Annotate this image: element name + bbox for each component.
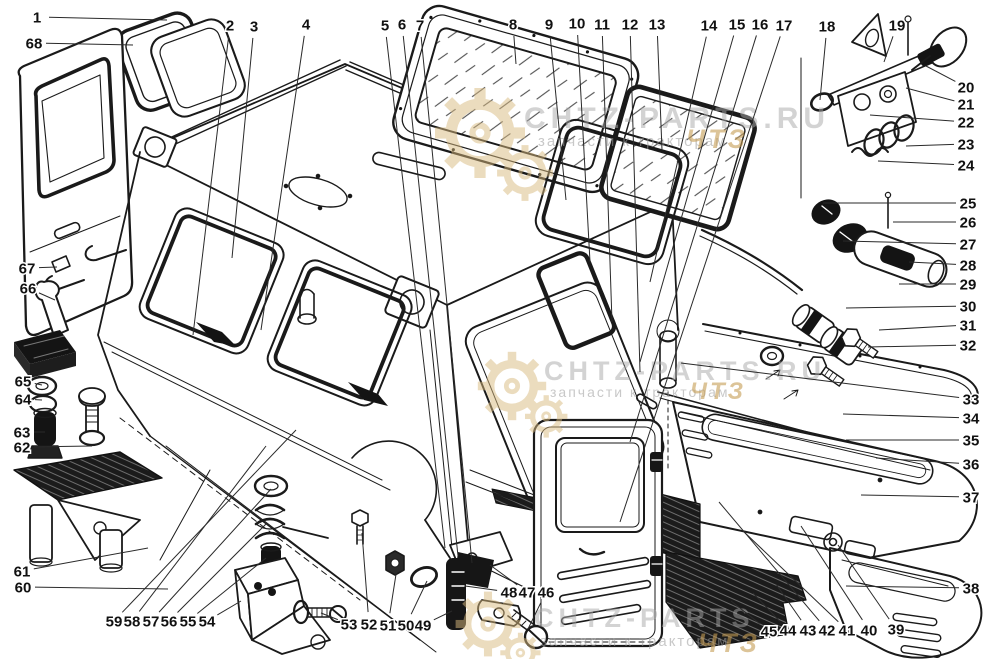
- part-number-37: 37: [963, 490, 980, 507]
- part-number-63: 63: [14, 425, 31, 442]
- part-number-21: 21: [958, 97, 975, 114]
- leader-line-31: [879, 326, 956, 330]
- part-number-49: 49: [415, 618, 432, 635]
- leader-line-60: [35, 587, 168, 589]
- part-number-53: 53: [341, 617, 358, 634]
- watermark-tagline-suffix: ЧТЗ: [690, 378, 746, 405]
- part-number-7: 7: [416, 18, 424, 35]
- part-number-56: 56: [161, 614, 178, 631]
- rain-gutter-strip: [700, 230, 802, 294]
- part-number-8: 8: [509, 17, 517, 34]
- rubber-cushion: [14, 330, 76, 378]
- washer: [409, 564, 440, 590]
- part-number-47: 47: [519, 585, 536, 602]
- part-number-54: 54: [199, 614, 216, 631]
- part-number-67: 67: [19, 261, 36, 278]
- leader-line-54: [217, 601, 241, 615]
- leader-line-24: [878, 161, 954, 164]
- part-number-20: 20: [958, 80, 975, 97]
- leader-line-47: [490, 565, 517, 585]
- part-number-10: 10: [569, 16, 586, 33]
- leader-line-18: [820, 38, 826, 100]
- side-panel-upper: [673, 402, 977, 558]
- part-number-35: 35: [963, 433, 980, 450]
- leader-line-52: [362, 533, 368, 612]
- part-number-66: 66: [20, 281, 37, 298]
- leader-line-30: [846, 306, 956, 308]
- part-number-50: 50: [398, 618, 415, 635]
- part-number-41: 41: [839, 623, 856, 640]
- part-number-40: 40: [861, 623, 878, 640]
- part-number-34: 34: [963, 411, 980, 428]
- cowl-bolt: [298, 290, 316, 325]
- part-number-30: 30: [960, 299, 977, 316]
- wheel-arch: [352, 441, 436, 520]
- part-number-36: 36: [963, 457, 980, 474]
- exploded-cab-diagram: CHTZ-PARTS.RUзапчасти к тракторамЧТЗCHTZ…: [0, 0, 1000, 659]
- part-number-28: 28: [960, 258, 977, 275]
- part-number-51: 51: [380, 618, 397, 635]
- part-number-6: 6: [398, 17, 406, 34]
- part-number-17: 17: [776, 18, 793, 35]
- part-number-52: 52: [361, 617, 378, 634]
- parts-diagram-page: CHTZ-PARTS.RUзапчасти к тракторамЧТЗCHTZ…: [0, 0, 1000, 659]
- part-number-44: 44: [780, 623, 797, 640]
- part-number-15: 15: [729, 17, 746, 34]
- part-number-48: 48: [501, 585, 518, 602]
- part-number-18: 18: [819, 19, 836, 36]
- support-bracket: [14, 452, 162, 572]
- part-number-3: 3: [250, 19, 258, 36]
- part-number-38: 38: [963, 581, 980, 598]
- part-number-5: 5: [381, 18, 389, 35]
- part-number-33: 33: [963, 392, 980, 409]
- watermark-tagline-suffix: ЧТЗ: [698, 628, 760, 658]
- part-number-64: 64: [15, 392, 32, 409]
- leader-line-32: [868, 345, 956, 347]
- part-number-29: 29: [960, 277, 977, 294]
- part-number-24: 24: [958, 158, 975, 175]
- leader-line-67: [39, 267, 57, 268]
- part-number-39: 39: [888, 622, 905, 639]
- leader-line-21: [906, 88, 954, 101]
- part-number-57: 57: [143, 614, 160, 631]
- hinge-cylinder: [849, 227, 951, 292]
- part-number-65: 65: [15, 374, 32, 391]
- part-number-12: 12: [622, 17, 639, 34]
- link-rod: [283, 527, 328, 538]
- part-number-13: 13: [649, 17, 666, 34]
- part-number-60: 60: [15, 580, 32, 597]
- part-number-32: 32: [960, 338, 977, 355]
- leader-line-34: [843, 414, 959, 418]
- part-number-26: 26: [960, 215, 977, 232]
- part-number-9: 9: [545, 17, 553, 34]
- small-bolt: [352, 510, 368, 544]
- part-number-4: 4: [302, 17, 311, 34]
- part-number-62: 62: [14, 440, 31, 457]
- part-number-11: 11: [594, 17, 610, 34]
- windshield-opening-right: [264, 256, 416, 409]
- part-number-16: 16: [752, 17, 769, 34]
- leader-line-23: [906, 144, 954, 146]
- watermark-brand-text: CHTZ-PARTS.RU: [544, 356, 826, 386]
- mount-bolt: [79, 388, 105, 445]
- part-number-14: 14: [701, 18, 718, 35]
- vent-window-opening: [536, 251, 616, 350]
- watermark-gear-icon: [456, 592, 541, 659]
- rubber-bushing-dark: [28, 409, 62, 459]
- part-number-27: 27: [960, 237, 977, 254]
- hinge-bracket: [235, 558, 330, 654]
- washer: [28, 377, 56, 395]
- part-number-43: 43: [800, 623, 817, 640]
- leader-line-20: [926, 66, 955, 81]
- part-number-1: 1: [33, 10, 41, 27]
- part-number-58: 58: [124, 614, 141, 631]
- part-number-68: 68: [26, 36, 43, 53]
- part-number-61: 61: [14, 564, 31, 581]
- part-number-19: 19: [889, 18, 906, 35]
- part-number-22: 22: [958, 115, 975, 132]
- washer-large: [255, 476, 287, 496]
- part-number-46: 46: [538, 585, 555, 602]
- part-number-45: 45: [761, 624, 778, 641]
- part-number-42: 42: [819, 623, 836, 640]
- part-number-55: 55: [180, 614, 197, 631]
- side-panel-lower: [830, 548, 981, 658]
- leader-line-1: [49, 17, 167, 20]
- drafting-arrow: [784, 390, 798, 399]
- part-number-23: 23: [958, 137, 975, 154]
- part-number-25: 25: [960, 196, 977, 213]
- watermark-tagline-suffix: ЧТЗ: [686, 124, 748, 154]
- part-number-31: 31: [960, 318, 977, 335]
- wiper-pivots: [196, 322, 388, 406]
- part-number-59: 59: [106, 614, 123, 631]
- part-number-2: 2: [226, 18, 234, 35]
- watermark-brand-text: CHTZ-PARTS.RU: [524, 102, 830, 135]
